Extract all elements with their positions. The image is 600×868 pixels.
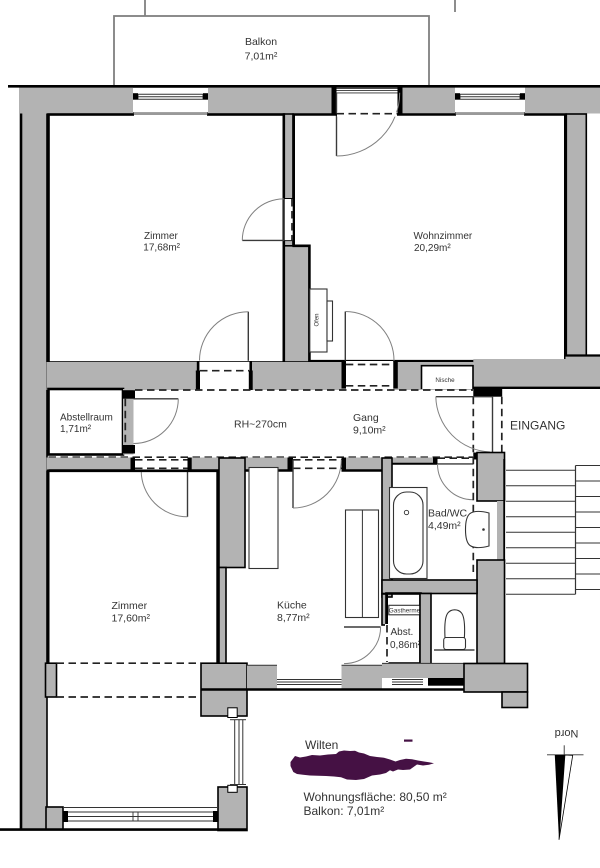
svg-text:Gastherme: Gastherme [389,608,421,615]
svg-text:Wohnungsfläche: 80,50 m²: Wohnungsfläche: 80,50 m² [304,790,447,804]
svg-text:7,01m²: 7,01m² [245,51,278,63]
svg-text:Abstellraum: Abstellraum [60,413,113,424]
svg-text:20,29m²: 20,29m² [414,243,451,254]
svg-text:Küche: Küche [277,600,307,612]
svg-text:8,77m²: 8,77m² [277,612,310,624]
svg-text:Wohnzimmer: Wohnzimmer [414,231,473,242]
svg-text:EINGANG: EINGANG [510,418,565,432]
svg-text:Wilten: Wilten [305,738,338,752]
svg-text:RH~270cm: RH~270cm [234,419,287,431]
svg-text:Ofen: Ofen [315,313,321,326]
svg-text:Gang: Gang [353,412,379,424]
svg-text:Balkon: 7,01m²: Balkon: 7,01m² [304,804,385,818]
svg-text:17,68m²: 17,68m² [143,242,180,253]
svg-text:17,60m²: 17,60m² [112,613,151,625]
svg-text:0,86m²: 0,86m² [390,640,422,651]
svg-text:Zimmer: Zimmer [112,600,148,612]
svg-text:Zimmer: Zimmer [144,231,179,242]
svg-text:Balkon: Balkon [245,36,277,48]
svg-text:Nord: Nord [555,727,579,739]
svg-text:1,71m²: 1,71m² [60,424,92,435]
svg-text:9,10m²: 9,10m² [353,425,386,437]
svg-text:Abst.: Abst. [391,627,414,638]
svg-text:Bad/WC: Bad/WC [428,508,468,520]
svg-text:4,49m²: 4,49m² [428,520,461,532]
svg-text:Nische: Nische [435,377,455,384]
